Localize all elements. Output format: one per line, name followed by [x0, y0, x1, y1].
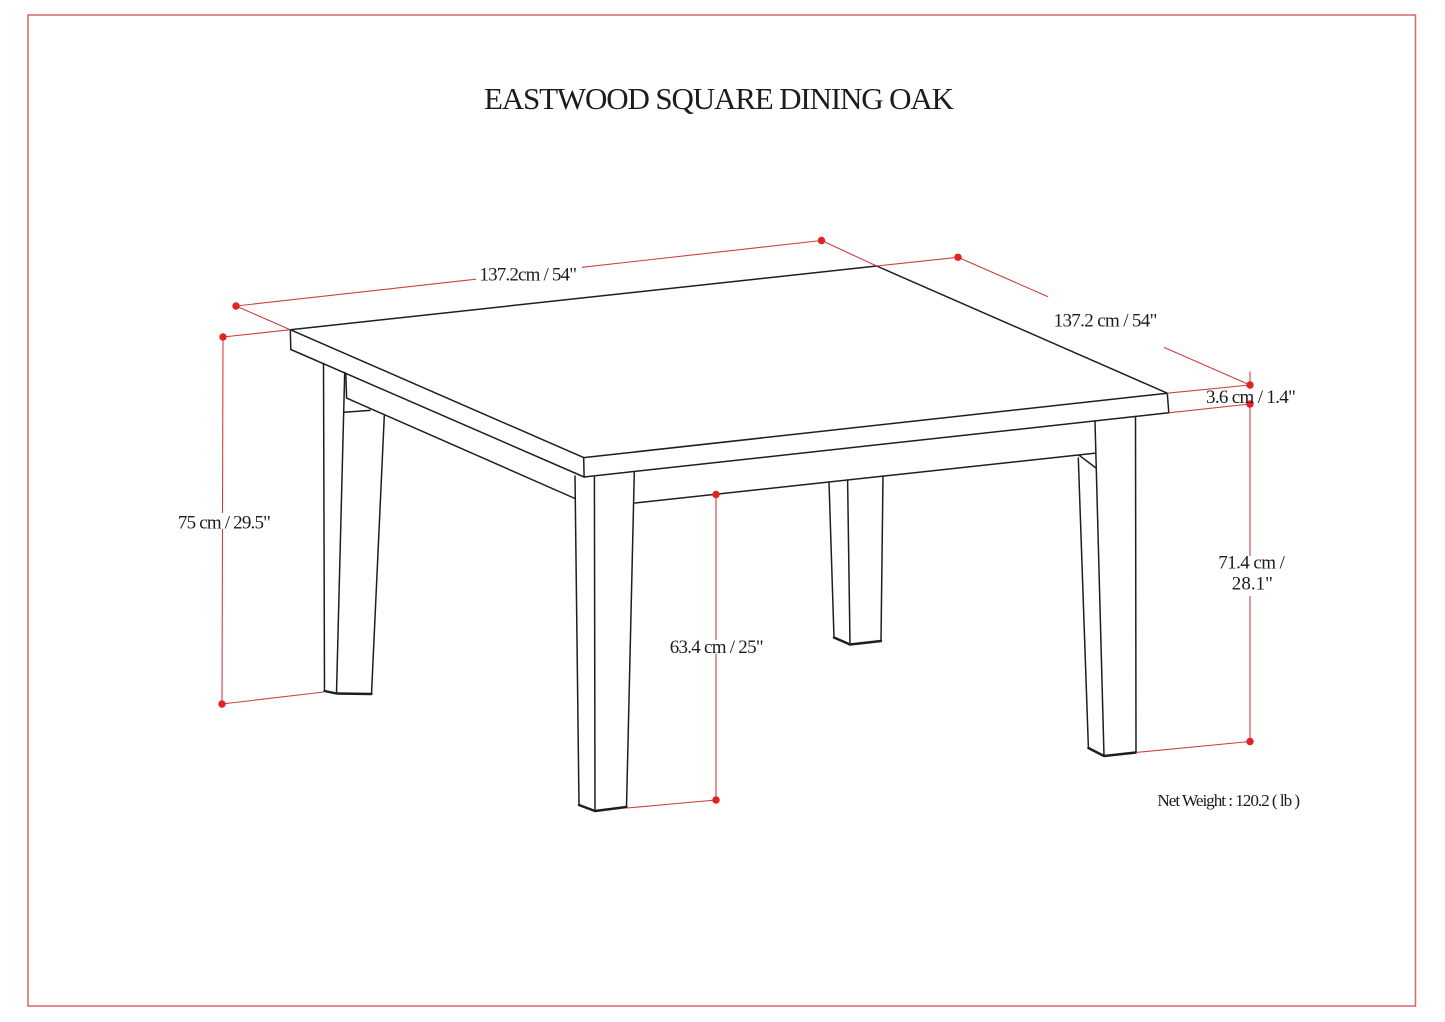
svg-text:EASTWOOD SQUARE DINING OAK: EASTWOOD SQUARE DINING OAK [484, 81, 955, 116]
svg-text:137.2 cm / 54": 137.2 cm / 54" [1054, 310, 1158, 331]
svg-text:3.6 cm / 1.4": 3.6 cm / 1.4" [1206, 387, 1296, 408]
svg-text:63.4 cm / 25": 63.4 cm / 25" [670, 637, 764, 658]
svg-text:75 cm / 29.5": 75 cm / 29.5" [178, 512, 271, 533]
svg-text:Net Weight : 120.2 ( lb ): Net Weight : 120.2 ( lb ) [1157, 791, 1300, 810]
svg-text:28.1": 28.1" [1232, 574, 1273, 595]
svg-text:71.4 cm /: 71.4 cm / [1218, 553, 1285, 574]
svg-text:137.2cm / 54": 137.2cm / 54" [479, 265, 577, 286]
